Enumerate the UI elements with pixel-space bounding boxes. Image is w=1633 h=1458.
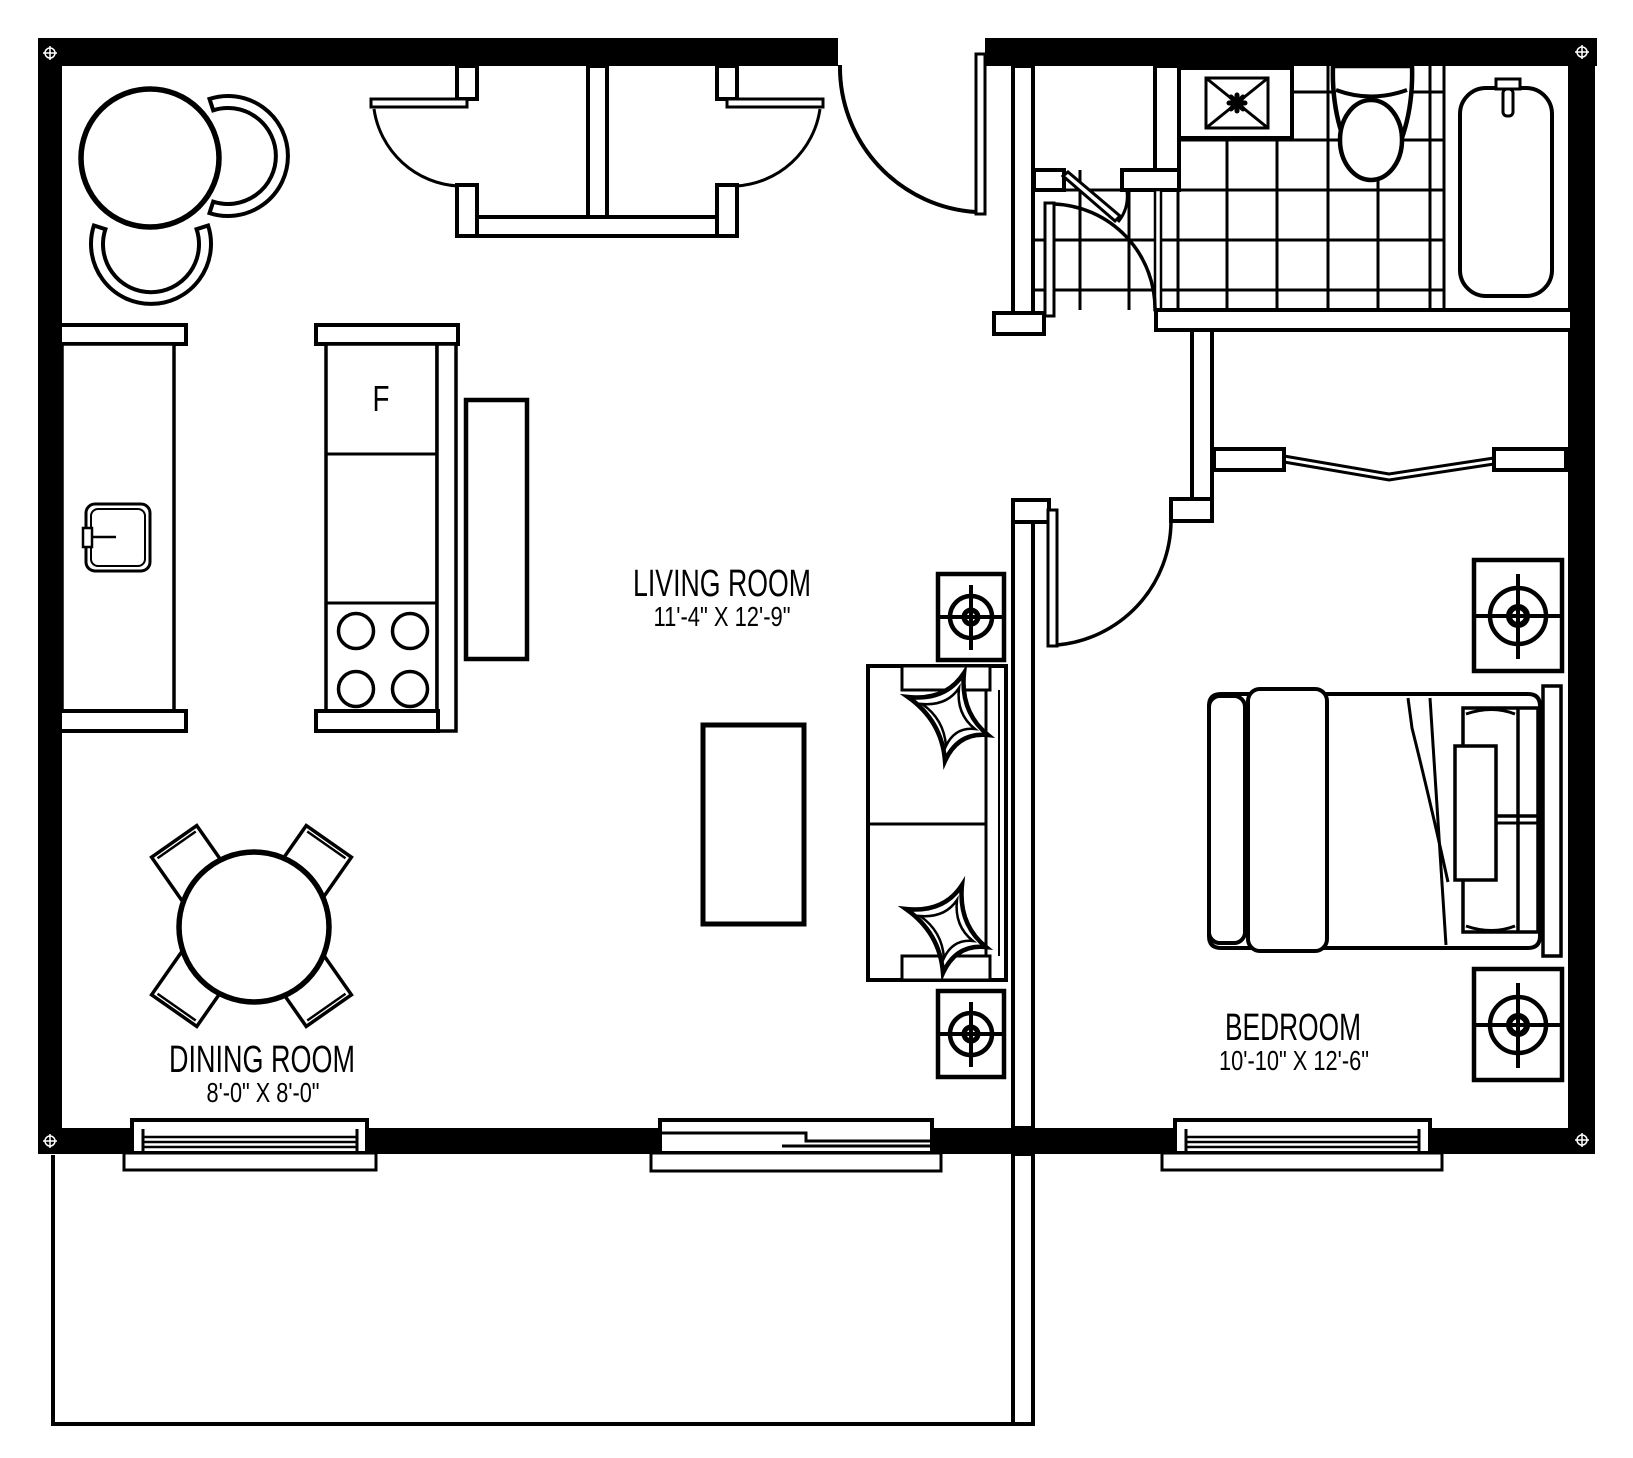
svg-text:LIVING ROOM: LIVING ROOM (633, 563, 811, 605)
svg-text:BEDROOM: BEDROOM (1225, 1007, 1361, 1049)
svg-text:11'-4" X 12'-9": 11'-4" X 12'-9" (654, 601, 791, 632)
svg-text:10'-10" X 12'-6": 10'-10" X 12'-6" (1219, 1045, 1369, 1076)
svg-text:DINING ROOM: DINING ROOM (169, 1039, 355, 1081)
svg-text:F: F (373, 378, 390, 419)
svg-text:8'-0" X 8'-0": 8'-0" X 8'-0" (207, 1077, 320, 1108)
